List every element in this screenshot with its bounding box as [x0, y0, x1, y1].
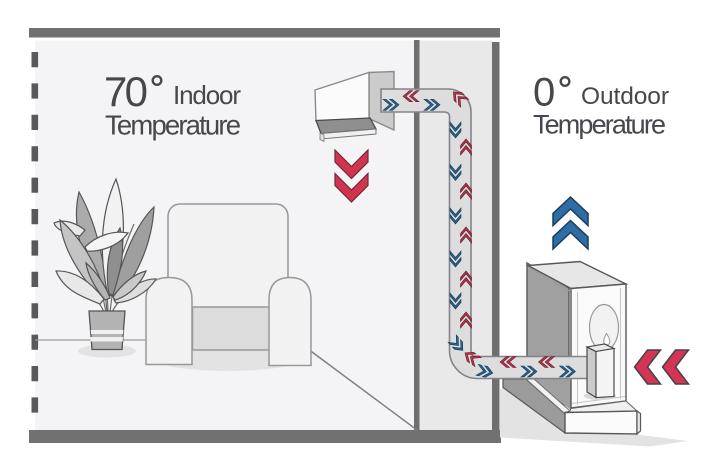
svg-text:0: 0	[533, 71, 555, 115]
svg-text:Outdoor: Outdoor	[581, 83, 669, 110]
svg-text:Indoor: Indoor	[173, 80, 241, 110]
svg-text:Temperature: Temperature	[105, 110, 241, 141]
svg-text:Temperature: Temperature	[533, 110, 666, 140]
svg-text:70: 70	[104, 68, 148, 115]
